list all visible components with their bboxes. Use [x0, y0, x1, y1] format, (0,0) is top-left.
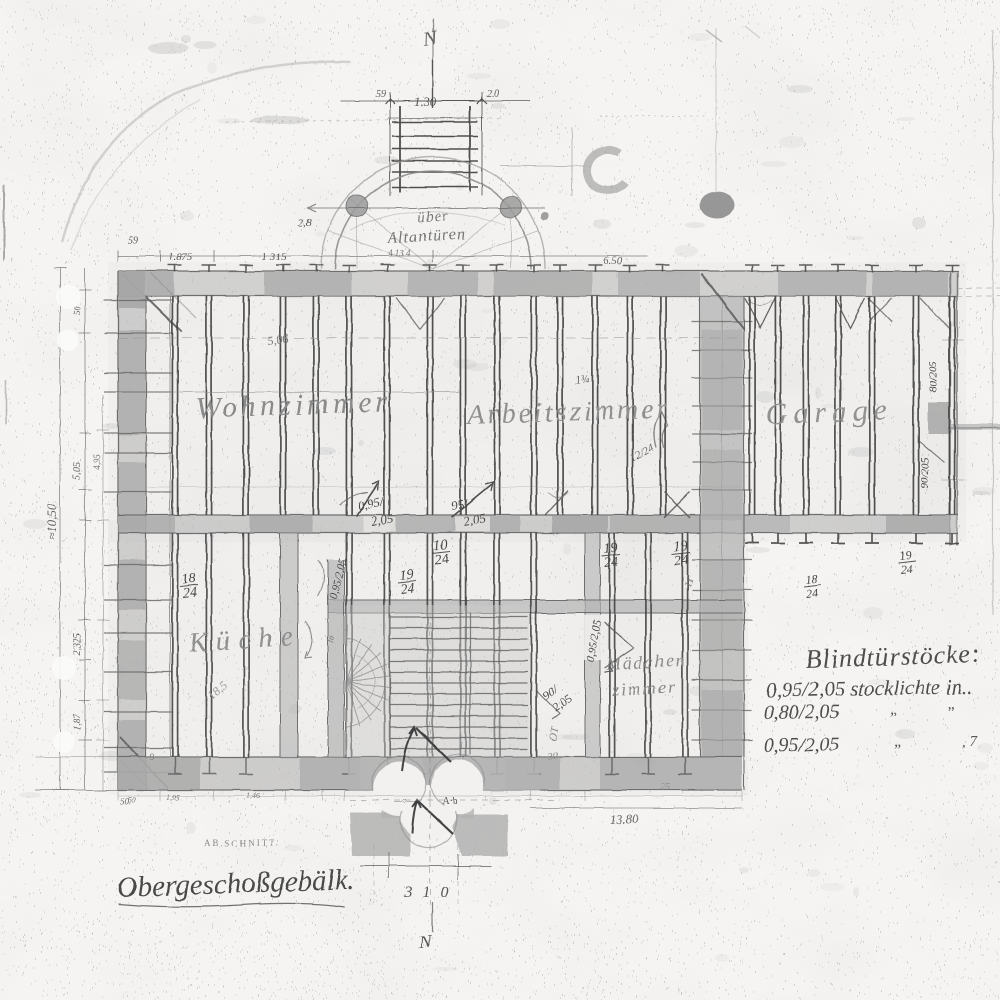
svg-text:24: 24: [674, 553, 689, 569]
svg-text:24: 24: [604, 555, 619, 571]
svg-text:24: 24: [434, 552, 449, 568]
svg-text:80/: 80/: [927, 377, 939, 392]
svg-text:19: 19: [899, 548, 912, 563]
svg-text:30: 30: [546, 750, 559, 763]
svg-text:über: über: [417, 208, 450, 226]
svg-text:0,80/2,05: 0,80/2,05: [764, 701, 840, 724]
svg-text:1.30: 1.30: [414, 94, 437, 109]
svg-text:—○—: —○—: [393, 796, 416, 805]
svg-text:59: 59: [376, 89, 386, 100]
svg-text:1 315: 1 315: [262, 251, 287, 263]
svg-text:24: 24: [900, 562, 913, 577]
svg-text:59: 59: [128, 235, 138, 246]
svg-text:205: 205: [919, 457, 931, 474]
svg-text:4,95: 4,95: [92, 454, 102, 470]
svg-text:Mädchen: Mädchen: [604, 650, 687, 674]
svg-text:205: 205: [927, 361, 939, 378]
svg-text:„: „: [890, 701, 899, 718]
svg-text:24: 24: [806, 586, 819, 601]
svg-text:9: 9: [150, 752, 155, 762]
svg-text:13.80: 13.80: [610, 811, 640, 827]
svg-text:50.: 50.: [120, 797, 131, 807]
svg-text:Blindtürstöcke:: Blindtürstöcke:: [805, 639, 981, 674]
svg-text:2,325: 2,325: [72, 633, 83, 656]
svg-text:Wohnzimmer: Wohnzimmer: [195, 385, 392, 425]
svg-text:24: 24: [400, 582, 415, 598]
svg-text:2.0: 2.0: [487, 89, 500, 100]
svg-text:18: 18: [805, 572, 818, 587]
svg-text:Garage: Garage: [765, 394, 894, 431]
svg-text:1,95: 1,95: [166, 793, 180, 802]
svg-text:1,87: 1,87: [72, 714, 82, 730]
svg-text:25: 25: [660, 782, 670, 793]
svg-text:„: „: [948, 695, 957, 712]
svg-text:90/: 90/: [919, 473, 931, 488]
svg-text:1,46: 1,46: [246, 791, 260, 800]
svg-text:24: 24: [182, 586, 197, 602]
svg-text:1¾: 1¾: [575, 373, 590, 387]
svg-text:5,05: 5,05: [72, 463, 83, 481]
svg-text:3 1 0: 3 1 0: [403, 884, 451, 901]
svg-text:2,8: 2,8: [298, 217, 312, 229]
svg-text:„: „: [894, 733, 903, 750]
svg-text:, 7: , 7: [962, 734, 979, 750]
svg-text:AB.SCHNITT.: AB.SCHNITT.: [204, 838, 280, 848]
svg-text:1.875: 1.875: [168, 251, 193, 263]
svg-text:5,06: 5,06: [267, 332, 289, 348]
svg-text:A·b: A·b: [442, 796, 458, 807]
svg-text:zimmer: zimmer: [610, 677, 677, 700]
svg-text:0,95/2,05: 0,95/2,05: [764, 734, 840, 757]
svg-text:≈10,50: ≈10,50: [44, 503, 59, 540]
svg-text:0,95/2,05 stocklichte in..: 0,95/2,05 stocklichte in..: [766, 674, 973, 702]
svg-text:6.50: 6.50: [603, 255, 623, 267]
